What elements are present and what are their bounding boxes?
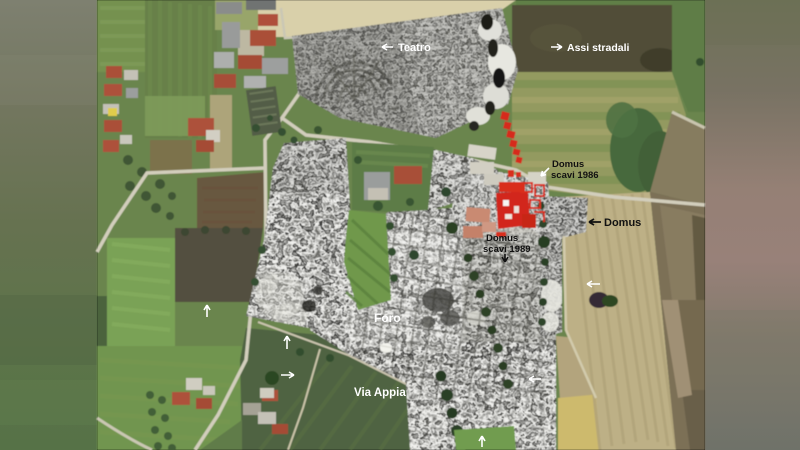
svg-text:Foro: Foro bbox=[374, 311, 401, 325]
svg-text:Domus: Domus bbox=[486, 233, 518, 244]
svg-text:Assi stradali: Assi stradali bbox=[567, 42, 630, 54]
svg-text:scavi 1986: scavi 1986 bbox=[551, 170, 599, 181]
svg-text:Domus: Domus bbox=[604, 217, 641, 229]
svg-text:Teatro: Teatro bbox=[398, 42, 431, 54]
svg-text:scavi 1989: scavi 1989 bbox=[483, 244, 531, 255]
svg-text:Via Appia: Via Appia bbox=[354, 387, 406, 399]
svg-text:Domus: Domus bbox=[552, 159, 584, 170]
